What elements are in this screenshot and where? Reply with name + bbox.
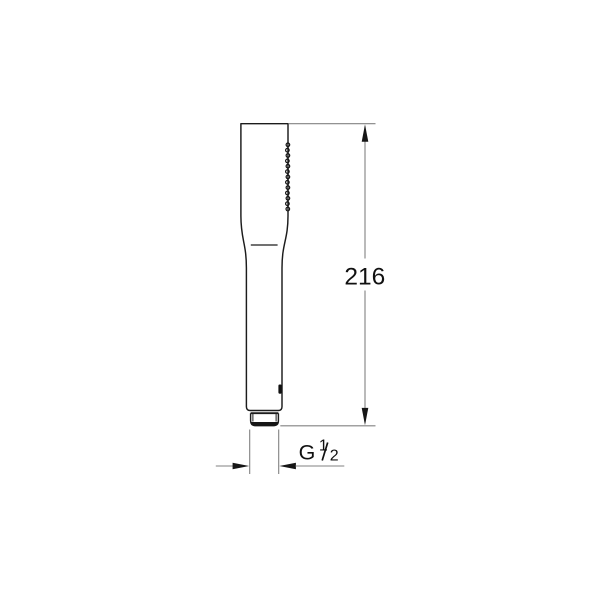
svg-text:G: G (299, 441, 316, 465)
svg-text:216: 216 (344, 263, 385, 290)
svg-text:2: 2 (330, 447, 339, 464)
